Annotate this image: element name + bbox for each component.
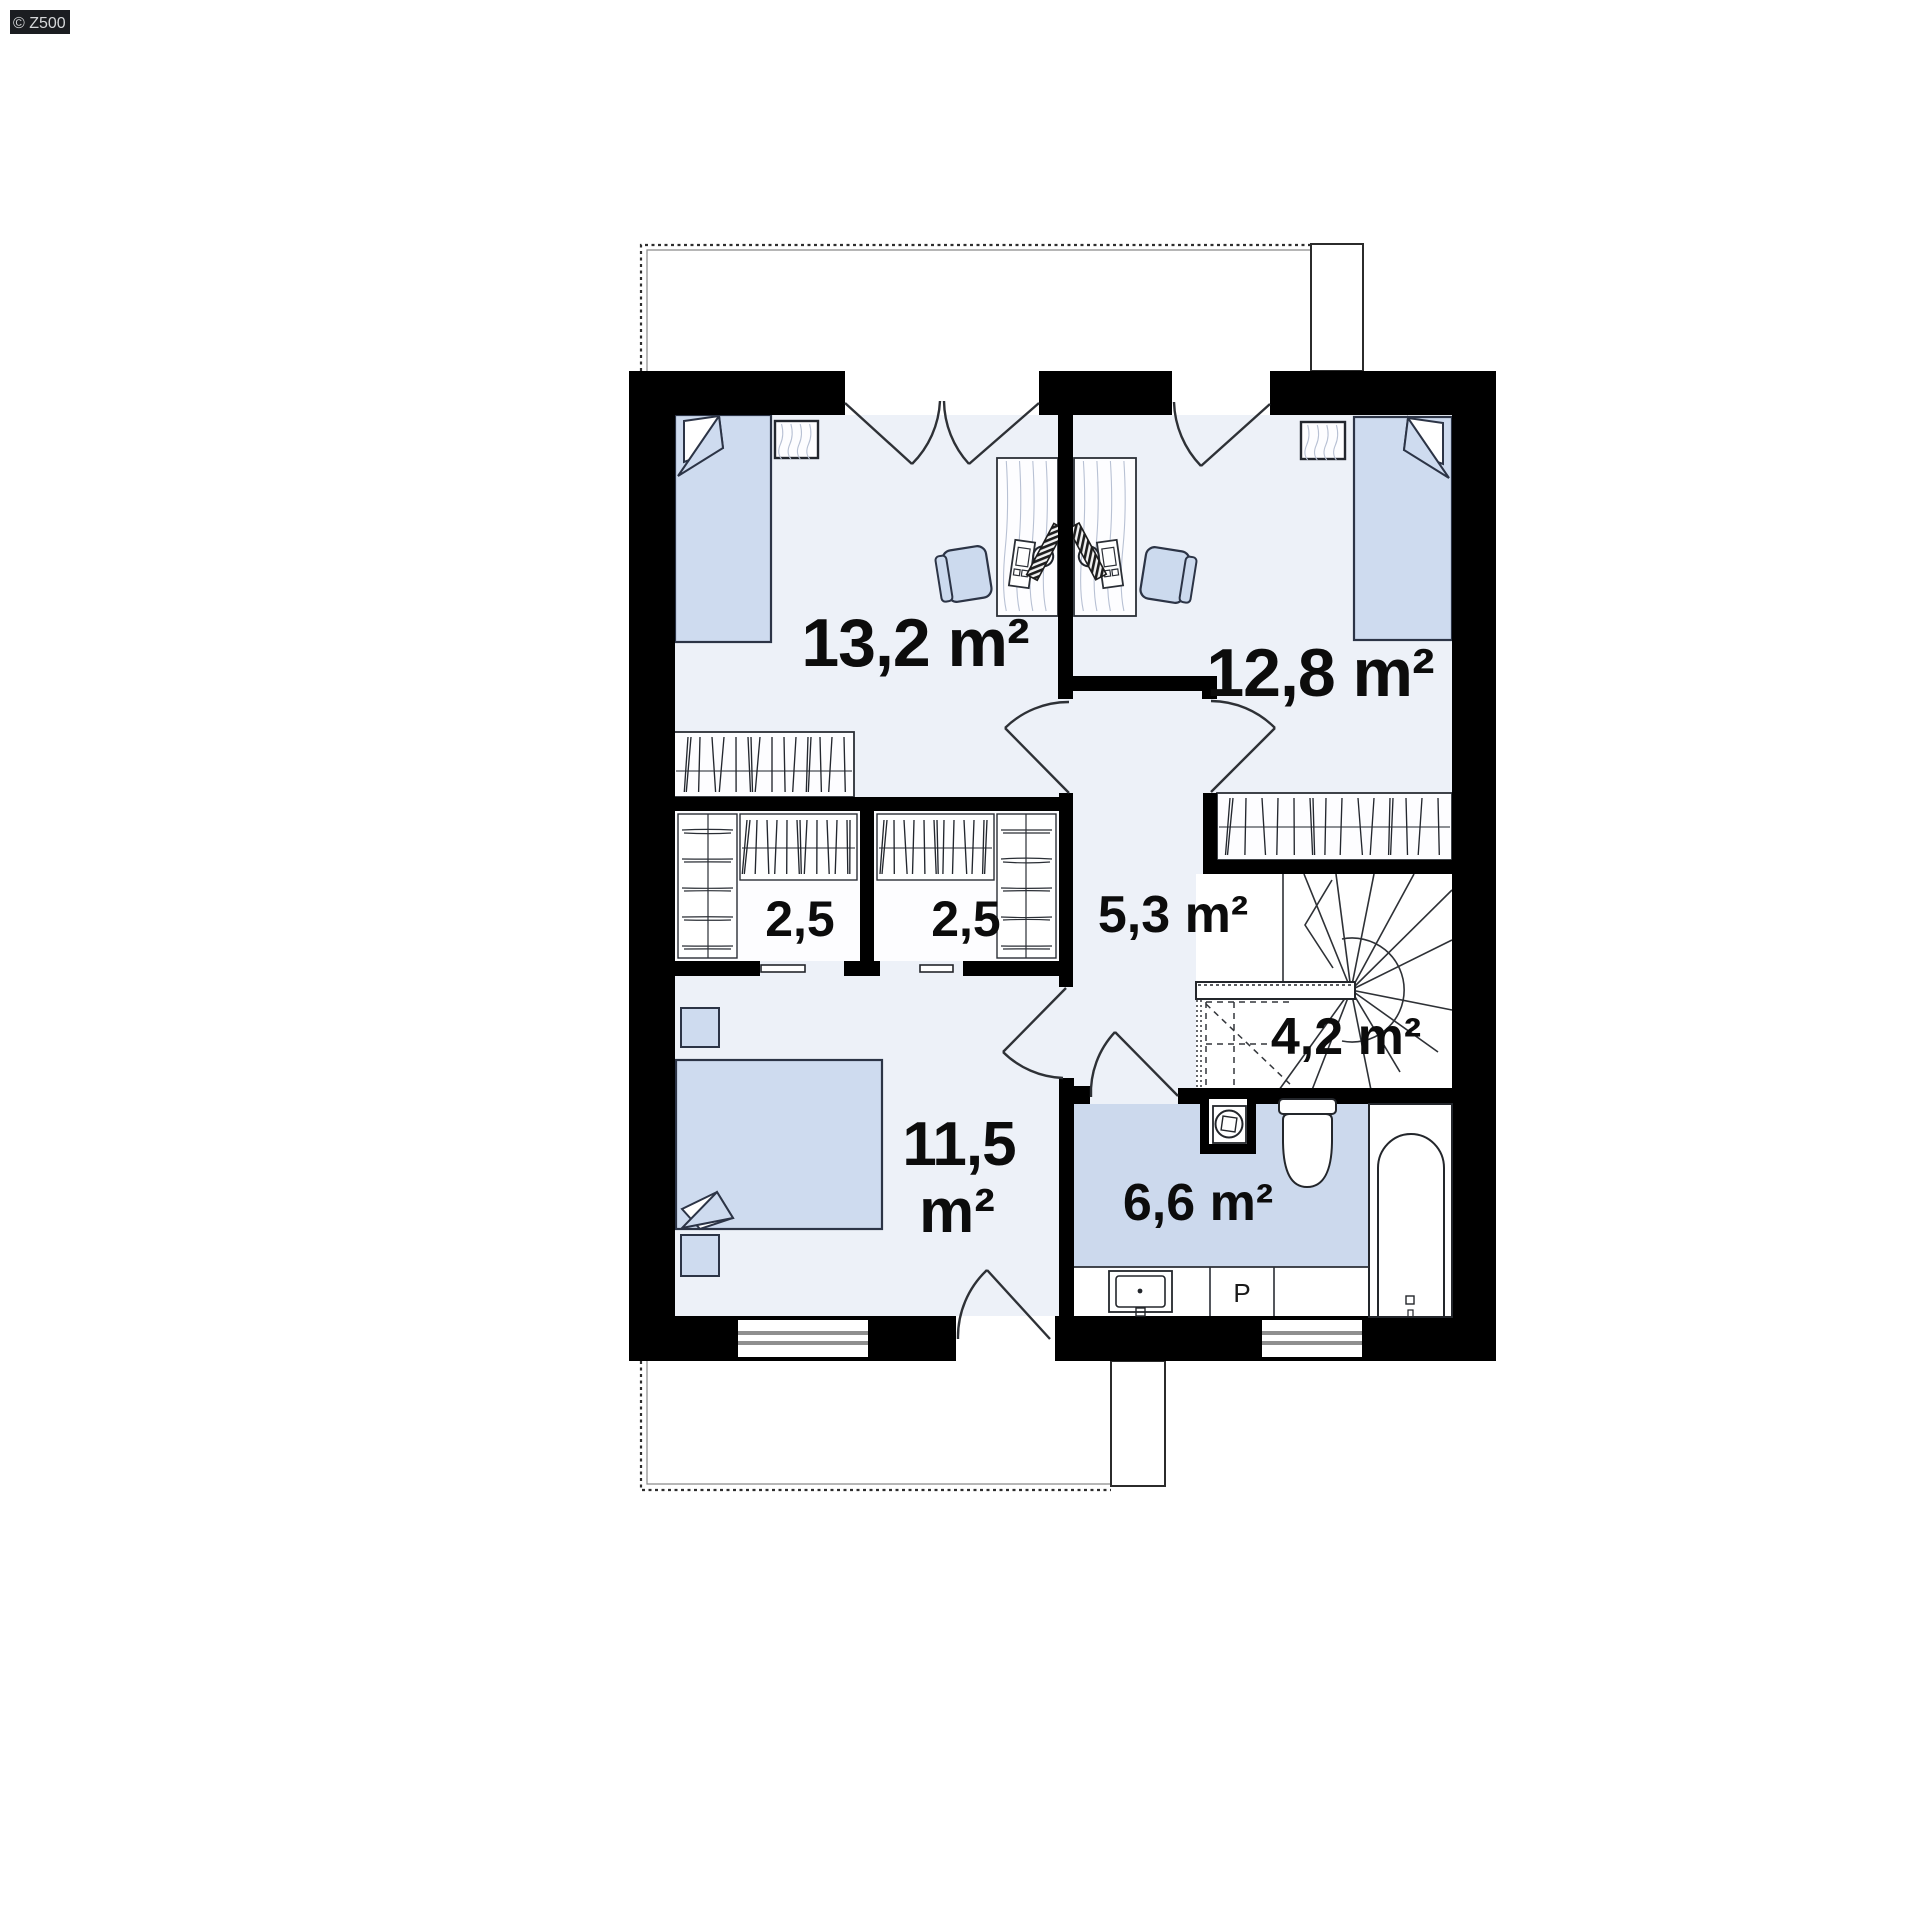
svg-text:13,2 m²: 13,2 m² [801,605,1029,681]
svg-text:2,5: 2,5 [765,891,835,947]
svg-text:11,5: 11,5 [902,1110,1015,1179]
svg-text:12,8 m²: 12,8 m² [1206,635,1434,711]
svg-text:© Z500: © Z500 [13,15,66,32]
svg-text:4,2 m²: 4,2 m² [1271,1008,1421,1066]
svg-text:6,6 m²: 6,6 m² [1123,1174,1273,1232]
svg-text:2,5: 2,5 [931,891,1001,947]
svg-text:5,3 m²: 5,3 m² [1098,886,1248,944]
svg-text:m²: m² [919,1177,995,1246]
svg-text:P: P [1233,1278,1250,1308]
